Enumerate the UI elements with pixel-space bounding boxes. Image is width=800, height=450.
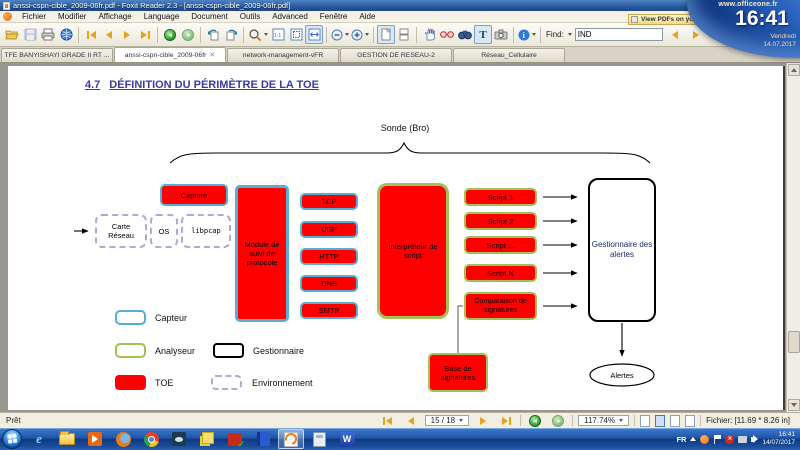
legend-capteur-swatch xyxy=(115,310,146,325)
status-first-page-icon xyxy=(386,417,392,425)
legend-toe-label: TOE xyxy=(155,378,173,388)
legend-environnement-swatch xyxy=(211,375,242,390)
svg-text:1:1: 1:1 xyxy=(274,33,281,39)
page-number-box[interactable]: 15 / 18 xyxy=(425,415,469,426)
internet-explorer-icon: e xyxy=(36,431,42,447)
back-icon xyxy=(164,29,176,41)
open-folder-icon xyxy=(5,28,19,41)
signature-base-box: Base de signatures xyxy=(428,353,488,392)
tray-time: 16:41 xyxy=(762,431,795,439)
zoom-out-button[interactable] xyxy=(330,25,350,44)
scrollbar-thumb[interactable] xyxy=(788,331,800,353)
previous-view-button[interactable] xyxy=(161,25,179,44)
notification-icon xyxy=(631,16,638,23)
sonde-label: Sonde (Bro) xyxy=(338,123,472,133)
status-first-page-button[interactable] xyxy=(379,411,397,430)
zoom-in-icon xyxy=(351,29,363,41)
forward-icon xyxy=(182,29,194,41)
prev-page-button[interactable] xyxy=(100,25,118,44)
fit-page-button[interactable] xyxy=(287,25,305,44)
tab-reseau-cellulaire[interactable]: Réseau_Cellulaire xyxy=(453,48,565,62)
alerts-label: Alertes xyxy=(610,371,634,380)
info-caret-icon xyxy=(532,33,536,36)
section-heading: 4.7 DÉFINITION DU PÉRIMÈTRE DE LA TOE xyxy=(85,79,319,91)
tab-gestion-de-reseau[interactable]: GESTION DE RESEAU-2 xyxy=(340,48,452,62)
prev-page-icon xyxy=(106,31,112,39)
layout-continuous-facing-button[interactable] xyxy=(685,415,695,427)
overlay-date: 14.07.2017 xyxy=(722,41,796,48)
script-etc-box: Script ... xyxy=(464,236,537,254)
volume-icon[interactable] xyxy=(751,437,754,442)
fit-width-icon xyxy=(308,28,321,41)
dark-app-icon xyxy=(172,432,186,446)
tray-clock[interactable]: 16:41 14/07/2017 xyxy=(762,431,795,447)
fit-page-icon xyxy=(290,28,303,41)
web-button[interactable] xyxy=(57,25,75,44)
overlay-time: 16:41 xyxy=(726,7,798,31)
last-page-icon xyxy=(141,31,147,39)
zoom-in-caret-icon xyxy=(365,33,369,36)
next-page-button[interactable] xyxy=(118,25,136,44)
start-button[interactable] xyxy=(2,429,22,449)
protocol-http-box: HTTP xyxy=(300,248,358,265)
menu-aide[interactable]: Aide xyxy=(353,11,381,22)
glasses-icon xyxy=(440,30,454,39)
zoom-in-button[interactable] xyxy=(350,25,370,44)
info-icon: i xyxy=(518,29,530,41)
actual-size-button[interactable]: 1:1 xyxy=(269,25,287,44)
interpreter-box: Interpréteur de script xyxy=(377,183,449,319)
taskbar-item-book[interactable] xyxy=(250,429,276,449)
taskbar-item-word[interactable] xyxy=(334,429,360,449)
tab-close-icon[interactable]: ✕ xyxy=(209,52,215,59)
binoculars-icon xyxy=(458,29,472,40)
single-page-button[interactable] xyxy=(377,25,395,44)
status-prev-page-icon xyxy=(408,417,414,425)
protocol-tcp-box: TCP xyxy=(300,193,358,210)
tray-date: 14/07/2017 xyxy=(762,439,795,447)
language-indicator[interactable]: FR xyxy=(676,435,686,444)
loupe-tool-button[interactable] xyxy=(438,25,456,44)
taskbar-item-explorer[interactable] xyxy=(54,429,80,449)
tab-anssi-cspn-cible[interactable]: anssi-cspn-cible_2009-06fr ✕ xyxy=(114,47,226,62)
scroll-up-icon xyxy=(791,68,797,72)
menu-fichier[interactable]: Fichier xyxy=(16,11,52,22)
overlay-day: Vendredi xyxy=(726,33,796,40)
firefox-icon xyxy=(116,432,131,447)
rotate-right-button[interactable] xyxy=(222,25,240,44)
open-file-button[interactable] xyxy=(3,25,21,44)
script-1-box: Script 1 xyxy=(464,188,537,206)
legend-gestionnaire-label: Gestionnaire xyxy=(253,346,304,356)
alert-tray-icon[interactable] xyxy=(725,435,734,444)
protocol-smtp-box: SMTP xyxy=(300,302,358,319)
text-select-button[interactable]: T xyxy=(474,25,492,44)
system-tray: FR 16:41 14/07/2017 xyxy=(676,431,798,447)
base-connector xyxy=(458,306,463,353)
taskbar-item-foxit[interactable] xyxy=(278,429,304,449)
find-next-icon xyxy=(693,31,699,39)
usb-tray-icon[interactable] xyxy=(738,436,747,443)
script-2-box: Script 2 xyxy=(464,212,537,230)
scroll-up-button[interactable] xyxy=(788,64,800,76)
tray-expand-icon[interactable] xyxy=(690,437,696,441)
legend-toe-swatch xyxy=(115,375,146,390)
pdf-page: 4.7 DÉFINITION DU PÉRIMÈTRE DE LA TOE So… xyxy=(8,66,785,410)
last-page-button[interactable] xyxy=(136,25,154,44)
hand-icon xyxy=(423,28,436,41)
word-icon xyxy=(340,432,355,447)
camera-icon xyxy=(494,29,508,40)
printer-icon xyxy=(41,28,55,41)
document-area: 4.7 DÉFINITION DU PÉRIMÈTRE DE LA TOE So… xyxy=(0,63,800,412)
status-next-view-button[interactable] xyxy=(549,411,567,430)
search-button[interactable] xyxy=(456,25,474,44)
protocol-dns-box: DNS xyxy=(300,275,358,292)
file-size-info: Fichier: [11.69 * 8.26 in] xyxy=(706,416,790,425)
find-label: Find: xyxy=(546,30,564,39)
sonde-brace xyxy=(170,143,650,163)
first-page-button[interactable] xyxy=(82,25,100,44)
libpcap-box: libpcap xyxy=(181,214,231,248)
legend-environnement-label: Environnement xyxy=(252,378,313,388)
taskbar-item-sticky-notes[interactable] xyxy=(194,429,220,449)
find-input[interactable] xyxy=(575,28,663,41)
save-button[interactable] xyxy=(21,25,39,44)
menu-language[interactable]: Language xyxy=(138,11,186,22)
vertical-scrollbar[interactable] xyxy=(786,63,800,412)
zoom-level-box[interactable]: 117.74% xyxy=(578,415,629,426)
protocol-udp-box: UDP xyxy=(300,221,358,238)
document-tabbar: TFE BANYISHAYI GRADE II RT ... anssi-csp… xyxy=(0,47,800,63)
rotate-right-icon xyxy=(225,28,238,41)
legend-gestionnaire-swatch xyxy=(213,343,244,358)
save-icon xyxy=(24,28,37,41)
snapshot-button[interactable] xyxy=(492,25,510,44)
menu-outils[interactable]: Outils xyxy=(234,11,266,22)
layout-continuous-button[interactable] xyxy=(655,415,665,427)
scroll-down-button[interactable] xyxy=(788,399,800,411)
taskbar-item-app[interactable] xyxy=(166,429,192,449)
find-group: Find: xyxy=(546,25,705,44)
script-n-box: Script N xyxy=(464,264,537,282)
status-last-page-button[interactable] xyxy=(497,411,515,430)
rotate-left-button[interactable] xyxy=(204,25,222,44)
tab-tfe-banyishayi[interactable]: TFE BANYISHAYI GRADE II RT ... xyxy=(1,48,113,62)
rotate-left-icon xyxy=(207,28,220,41)
status-prev-page-button[interactable] xyxy=(402,411,420,430)
globe-icon xyxy=(60,28,73,41)
calculator-icon xyxy=(313,432,326,447)
continuous-page-button[interactable] xyxy=(395,25,413,44)
page-number: 15 / 18 xyxy=(431,416,455,425)
dictionary-icon xyxy=(228,433,242,446)
chrome-icon xyxy=(144,432,159,447)
windows-logo-icon xyxy=(7,434,12,439)
print-button[interactable] xyxy=(39,25,57,44)
find-prev-icon xyxy=(672,31,678,39)
menu-affichage[interactable]: Affichage xyxy=(92,11,137,22)
status-back-icon xyxy=(529,415,541,427)
first-page-icon xyxy=(90,31,96,39)
page-number-caret-icon xyxy=(459,419,463,422)
menu-document[interactable]: Document xyxy=(185,11,233,22)
taskbar-item-chrome[interactable] xyxy=(138,429,164,449)
status-last-page-icon xyxy=(502,417,508,425)
scroll-down-icon xyxy=(791,403,797,407)
taskbar-item-dictionary[interactable] xyxy=(222,429,248,449)
comparison-box: Comparaison de signatures xyxy=(464,292,537,320)
foxit-document-icon xyxy=(3,2,10,10)
folder-icon xyxy=(59,433,75,445)
media-player-icon xyxy=(88,432,102,446)
foxit-reader-icon xyxy=(284,432,298,447)
manager-box: Gestionnaire des alertes xyxy=(588,178,656,322)
carte-reseau-box: Carte Réseau xyxy=(95,214,147,248)
status-forward-icon xyxy=(552,415,564,427)
zoom-tool-button[interactable] xyxy=(247,25,269,44)
action-center-flag-icon[interactable] xyxy=(713,435,721,444)
toolbar: 1:1 T i Find: xyxy=(0,23,800,47)
os-box: OS xyxy=(150,214,178,248)
zoom-out-caret-icon xyxy=(345,33,349,36)
menu-fenetre[interactable]: Fenêtre xyxy=(314,11,354,22)
taskbar-item-media-player[interactable] xyxy=(82,429,108,449)
next-page-icon xyxy=(124,31,130,39)
zoom-tool-caret-icon xyxy=(264,33,268,36)
next-view-button[interactable] xyxy=(179,25,197,44)
zoom-level: 117.74% xyxy=(584,416,615,425)
text-select-icon: T xyxy=(479,29,486,41)
info-button[interactable]: i xyxy=(517,25,537,44)
status-next-page-button[interactable] xyxy=(474,411,492,430)
taskbar: e FR 16:41 14/07/2017 xyxy=(0,428,800,450)
status-next-page-icon xyxy=(480,417,486,425)
zoom-level-caret-icon xyxy=(619,419,623,422)
taskbar-item-ie[interactable]: e xyxy=(26,429,52,449)
legend-analyseur-label: Analyseur xyxy=(155,346,195,356)
capture-box: Capture xyxy=(160,184,228,206)
taskbar-item-firefox[interactable] xyxy=(110,429,136,449)
foxit-logo-icon xyxy=(3,12,12,21)
tab-network-management[interactable]: network-management-vFR xyxy=(227,48,339,62)
magnifier-icon xyxy=(248,28,262,42)
menu-modifier[interactable]: Modifier xyxy=(52,11,92,22)
legend-capteur-label: Capteur xyxy=(155,313,187,323)
heading-number: 4.7 xyxy=(85,79,100,91)
sticky-notes-icon xyxy=(202,432,214,444)
menu-advanced[interactable]: Advanced xyxy=(266,11,314,22)
layout-facing-button[interactable] xyxy=(670,415,680,427)
find-previous-button[interactable] xyxy=(666,25,684,44)
continuous-page-icon xyxy=(398,28,410,41)
actual-size-icon: 1:1 xyxy=(272,28,285,41)
heading-title: DÉFINITION DU PÉRIMÈTRE DE LA TOE xyxy=(109,79,319,91)
find-caret-icon[interactable] xyxy=(568,33,572,36)
antivirus-tray-icon[interactable] xyxy=(700,435,709,444)
taskbar-item-calculator[interactable] xyxy=(306,429,332,449)
module-suivi-box: Module de suivi de protocole xyxy=(235,185,289,322)
status-ready: Prêt xyxy=(6,416,21,425)
titlebar[interactable]: anssi-cspn-cible_2009-06fr.pdf - Foxit R… xyxy=(0,0,800,11)
layout-single-button[interactable] xyxy=(640,415,650,427)
blue-book-icon xyxy=(257,432,270,446)
statusbar: Prêt 15 / 18 117.74% Fichier: [11.69 * 8… xyxy=(0,412,800,428)
zoom-out-icon xyxy=(331,29,343,41)
alerts-ellipse xyxy=(590,364,654,386)
window-title: anssi-cspn-cible_2009-06fr.pdf - Foxit R… xyxy=(13,1,290,10)
legend-analyseur-swatch xyxy=(115,343,146,358)
single-page-icon xyxy=(380,28,392,41)
hand-tool-button[interactable] xyxy=(420,25,438,44)
fit-width-button[interactable] xyxy=(305,25,323,44)
status-previous-view-button[interactable] xyxy=(526,411,544,430)
